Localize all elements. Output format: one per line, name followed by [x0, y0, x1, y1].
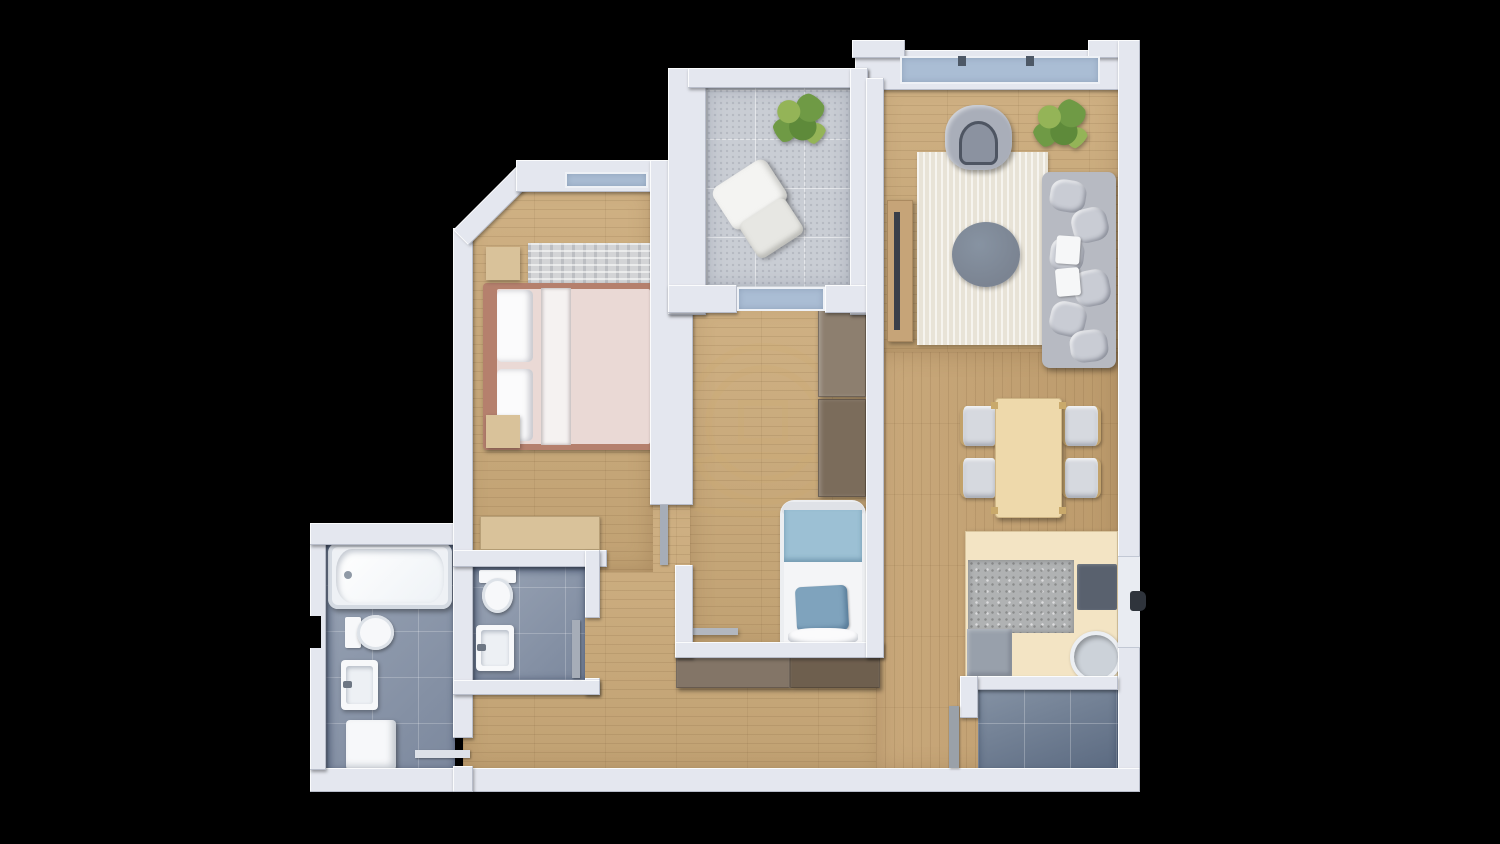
- table-leg: [991, 507, 998, 514]
- dining-chair: [960, 406, 999, 446]
- dining-chair: [960, 458, 999, 498]
- wc-sink-faucet: [477, 644, 486, 651]
- balcony-wall-left: [668, 68, 706, 315]
- granite-worktop: [968, 560, 1074, 633]
- dining-table: [995, 398, 1062, 518]
- nightstand-top: [486, 247, 520, 280]
- balcony-glass-door: [737, 287, 825, 311]
- entrance-wall-stub: [960, 676, 978, 718]
- window-mullion: [958, 56, 966, 66]
- sofa-cushion: [1068, 328, 1110, 364]
- single-bed: [780, 500, 866, 650]
- sofa-white-pillow: [1055, 267, 1081, 297]
- armchair-seat: [959, 121, 998, 165]
- bathroom-wall-top: [310, 523, 470, 545]
- dining-chair: [1062, 406, 1101, 446]
- outer-wall-right: [1118, 40, 1140, 790]
- balcony-plant: [772, 92, 828, 148]
- living-plant: [1032, 98, 1090, 152]
- outer-wall-bottom: [310, 768, 1140, 792]
- kitchen-appliance: [967, 629, 1012, 676]
- bathroom-toilet: [345, 615, 394, 650]
- sofa: [1042, 172, 1116, 368]
- hallway-console-right: [790, 656, 880, 688]
- armchair: [945, 105, 1012, 170]
- wardrobe-lower: [818, 399, 866, 497]
- bedroom-door-leaf: [660, 505, 668, 565]
- hallway-console-left: [676, 656, 790, 688]
- wardrobe-upper: [818, 306, 866, 397]
- balcony-wall-bottom-right: [825, 285, 868, 313]
- bed-runner-blanket: [541, 288, 571, 445]
- kitchen-entrance-wall: [960, 676, 1118, 690]
- bedroom-wall-left: [453, 228, 473, 738]
- watermark-house-icon: [738, 400, 788, 444]
- single-bed-blanket: [784, 510, 862, 562]
- floor-plan-stage: [0, 0, 1500, 844]
- cooktop: [1077, 564, 1117, 610]
- front-door-handle: [1130, 591, 1146, 611]
- bathtub-faucet: [344, 571, 352, 579]
- bathroom-door-leaf: [415, 750, 470, 758]
- window-mullion: [1026, 56, 1034, 66]
- bathroom-wall-notch: [310, 616, 321, 648]
- single-bed-pillow: [795, 585, 849, 633]
- wc-wall-bottom: [453, 680, 600, 695]
- sofa-white-pillow: [1055, 235, 1081, 265]
- sink-faucet: [343, 681, 352, 688]
- kids-wall-bottom: [675, 642, 884, 658]
- tv-sideboard: [887, 200, 913, 342]
- bedroom-wall-bottom: [453, 550, 607, 567]
- balcony-wall-bottom-left: [668, 285, 737, 313]
- bathtub-basin: [336, 549, 444, 603]
- outer-wall-top-tab-left: [852, 40, 905, 58]
- bathtub: [328, 543, 452, 609]
- bathroom-sink: [341, 660, 378, 710]
- wc-toilet: [479, 570, 516, 613]
- living-kids-wall: [866, 78, 884, 658]
- living-room-window: [900, 56, 1100, 84]
- coffee-table: [952, 222, 1020, 287]
- bedroom-window: [565, 172, 648, 188]
- bedroom-dresser: [480, 516, 600, 550]
- bedroom-bathroom-wall-segment: [453, 766, 473, 792]
- table-leg: [1059, 402, 1066, 409]
- toilet-bowl: [357, 615, 394, 650]
- wc-wall-right-upper: [585, 550, 600, 618]
- entrance-floor: [978, 684, 1118, 770]
- bed-pillow-top: [497, 290, 533, 362]
- wc-toilet-bowl: [482, 578, 513, 613]
- washing-machine: [346, 720, 396, 770]
- nightstand-bottom: [486, 415, 520, 448]
- tv-screen: [894, 212, 900, 330]
- dining-chair: [1062, 458, 1101, 498]
- wc-sink: [476, 625, 514, 671]
- table-leg: [1059, 507, 1066, 514]
- wc-door-leaf: [572, 620, 580, 678]
- balcony-parapet-top: [688, 68, 868, 88]
- entrance-door-leaf: [949, 706, 959, 768]
- table-leg: [991, 402, 998, 409]
